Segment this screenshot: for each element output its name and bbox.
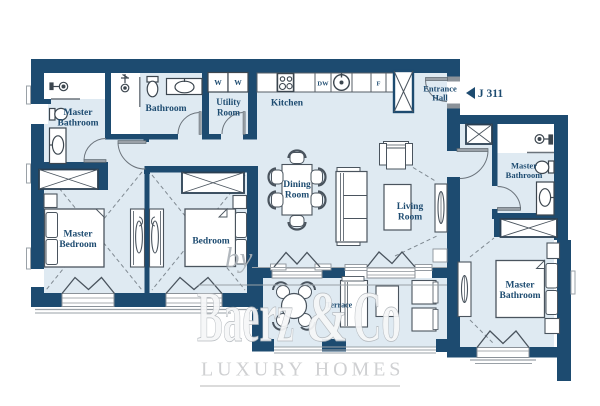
svg-text:Co: Co [353, 277, 401, 357]
svg-text:W: W [234, 78, 242, 87]
svg-text:DW: DW [317, 81, 329, 88]
svg-text:Room: Room [285, 191, 309, 201]
svg-text:Room: Room [398, 213, 422, 223]
svg-text:Bathroom: Bathroom [146, 104, 187, 114]
svg-text:Bedroom: Bedroom [59, 240, 96, 250]
svg-text:Dining: Dining [283, 180, 311, 190]
svg-text:by: by [225, 242, 253, 274]
svg-text:&: & [306, 277, 348, 357]
svg-text:Bathroom: Bathroom [500, 291, 541, 301]
svg-text:Kitchen: Kitchen [271, 99, 304, 109]
svg-text:Hall: Hall [432, 93, 448, 103]
svg-text:W: W [214, 78, 222, 87]
svg-text:Utility: Utility [216, 97, 241, 107]
svg-text:Master: Master [63, 108, 93, 118]
svg-text:F: F [377, 81, 381, 88]
svg-text:Bathroom: Bathroom [58, 119, 99, 129]
svg-text:LUXURY HOMES: LUXURY HOMES [201, 359, 404, 381]
svg-text:Living: Living [397, 202, 424, 212]
svg-text:Master: Master [63, 230, 93, 240]
svg-text:Room: Room [217, 108, 240, 118]
svg-text:Master: Master [505, 281, 535, 291]
svg-text:Master: Master [511, 161, 537, 171]
svg-text:Bathroom: Bathroom [506, 170, 543, 180]
svg-text:J 311: J 311 [478, 88, 503, 100]
svg-text:Baerz: Baerz [197, 277, 294, 357]
